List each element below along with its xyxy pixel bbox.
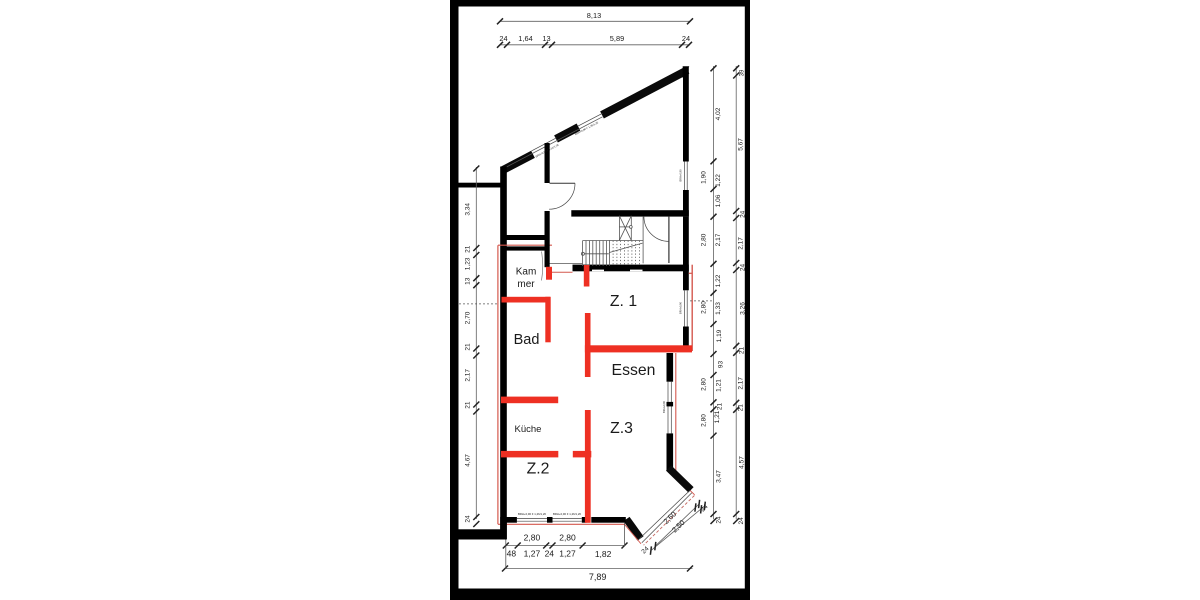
svg-text:24: 24 (640, 545, 650, 555)
svg-text:21: 21 (738, 404, 745, 412)
svg-text:39: 39 (740, 69, 746, 76)
svg-text:4,67: 4,67 (464, 454, 471, 467)
svg-text:Z. 1: Z. 1 (610, 293, 637, 310)
svg-text:24: 24 (545, 549, 555, 559)
svg-text:3,47: 3,47 (715, 470, 722, 483)
svg-text:2,70: 2,70 (464, 311, 471, 324)
svg-text:1,21: 1,21 (715, 379, 722, 392)
svg-text:2,80: 2,80 (700, 414, 707, 427)
svg-text:48: 48 (507, 549, 517, 559)
svg-text:1,27: 1,27 (524, 549, 541, 559)
svg-text:13: 13 (542, 34, 550, 43)
svg-text:24: 24 (715, 516, 722, 524)
svg-text:Bad: Bad (514, 332, 540, 348)
svg-text:1,06: 1,06 (715, 194, 722, 207)
svg-text:BRH+0,90: BRH+0,90 (678, 169, 682, 182)
svg-text:8,13: 8,13 (587, 11, 601, 20)
svg-text:4,57: 4,57 (739, 456, 746, 469)
svg-text:24: 24 (682, 34, 690, 43)
svg-text:BRH+0,90 F 1,26/1,26: BRH+0,90 F 1,26/1,26 (518, 512, 546, 516)
svg-text:1,22: 1,22 (715, 274, 722, 287)
svg-text:Küche: Küche (515, 424, 542, 435)
svg-text:2,80: 2,80 (524, 533, 541, 543)
svg-text:BRH+0,90 F 1,26/1,26: BRH+0,90 F 1,26/1,26 (553, 512, 581, 516)
svg-text:Kam: Kam (516, 267, 537, 278)
svg-text:Z.3: Z.3 (610, 420, 633, 437)
svg-text:2,80: 2,80 (700, 301, 707, 314)
svg-text:21: 21 (464, 343, 471, 351)
svg-text:1,21: 1,21 (714, 410, 721, 423)
svg-text:3,26: 3,26 (739, 302, 746, 315)
svg-text:2,17: 2,17 (464, 369, 471, 382)
svg-text:5,67: 5,67 (738, 138, 745, 151)
svg-text:4,02: 4,02 (715, 107, 722, 120)
svg-text:24: 24 (464, 515, 471, 523)
svg-text:1,27: 1,27 (559, 549, 576, 559)
svg-text:1,22: 1,22 (715, 174, 722, 187)
svg-text:21: 21 (464, 245, 471, 253)
svg-text:1,82: 1,82 (595, 549, 612, 559)
svg-text:mer: mer (517, 279, 535, 290)
svg-text:3,34: 3,34 (464, 203, 471, 216)
svg-text:1,90: 1,90 (700, 171, 707, 184)
svg-text:BRH+0,90: BRH+0,90 (662, 400, 666, 413)
svg-text:21: 21 (739, 347, 746, 355)
svg-text:Z.2: Z.2 (527, 461, 550, 478)
svg-text:24: 24 (739, 264, 746, 272)
svg-text:1,64: 1,64 (518, 34, 532, 43)
svg-text:2,17: 2,17 (738, 377, 745, 390)
svg-text:24: 24 (739, 210, 746, 218)
svg-text:7,89: 7,89 (589, 572, 607, 582)
svg-text:2,80: 2,80 (700, 378, 707, 391)
svg-text:1,33: 1,33 (715, 302, 722, 315)
svg-text:2,17: 2,17 (715, 233, 722, 246)
svg-text:1,19: 1,19 (716, 329, 723, 342)
svg-text:5,89: 5,89 (610, 34, 624, 43)
svg-text:21: 21 (464, 401, 471, 409)
svg-text:BRH+0,90: BRH+0,90 (678, 301, 682, 314)
svg-text:13: 13 (464, 277, 471, 285)
svg-text:2,80: 2,80 (559, 533, 576, 543)
svg-text:2,17: 2,17 (738, 237, 745, 250)
svg-text:24: 24 (738, 517, 745, 525)
svg-text:21: 21 (717, 403, 724, 411)
svg-text:24: 24 (499, 34, 507, 43)
svg-text:2,80: 2,80 (700, 233, 707, 246)
svg-text:1,23: 1,23 (464, 257, 471, 270)
svg-text:Essen: Essen (612, 362, 656, 379)
svg-text:93: 93 (718, 361, 725, 369)
